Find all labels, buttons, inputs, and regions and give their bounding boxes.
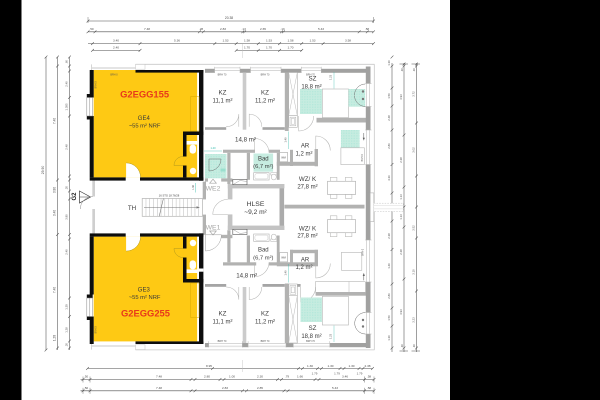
svg-text:1.13: 1.13 <box>399 214 403 220</box>
svg-text:2.83: 2.83 <box>220 27 226 31</box>
svg-text:.58: .58 <box>365 27 370 31</box>
svg-text:1.79: 1.79 <box>357 371 363 375</box>
svg-text:11,2 m²: 11,2 m² <box>255 320 275 326</box>
svg-text:5.36: 5.36 <box>174 39 180 43</box>
svg-text:.28: .28 <box>199 27 204 31</box>
svg-text:Bad: Bad <box>258 156 269 162</box>
svg-text:G2: G2 <box>72 192 78 201</box>
svg-text:.30: .30 <box>400 68 404 72</box>
svg-text:.13: .13 <box>242 27 247 31</box>
svg-text:3.10: 3.10 <box>412 269 416 275</box>
svg-text:3.40: 3.40 <box>113 39 119 43</box>
svg-text:1.30: 1.30 <box>387 60 391 66</box>
svg-text:1.13: 1.13 <box>399 194 403 200</box>
svg-text:GE4: GE4 <box>138 116 151 122</box>
svg-text:1.30: 1.30 <box>387 335 391 341</box>
svg-text:27,8 m²: 27,8 m² <box>297 185 317 191</box>
svg-text:TH: TH <box>128 205 136 212</box>
svg-text:.58: .58 <box>367 375 372 379</box>
svg-text:~55 m² NRF: ~55 m² NRF <box>129 123 161 129</box>
svg-text:2.83: 2.83 <box>222 386 228 390</box>
svg-text:3.72: 3.72 <box>412 91 416 97</box>
svg-text:3.80: 3.80 <box>65 214 69 220</box>
svg-text:11,1 m²: 11,1 m² <box>213 99 233 105</box>
svg-text:3.80: 3.80 <box>53 187 57 193</box>
svg-text:1.40: 1.40 <box>283 270 287 276</box>
svg-text:BRH 0: BRH 0 <box>110 73 118 76</box>
svg-text:1,2 m²: 1,2 m² <box>295 265 312 271</box>
svg-text:BRH 70: BRH 70 <box>261 73 270 76</box>
svg-text:1.30: 1.30 <box>327 364 333 368</box>
svg-text:2.38: 2.38 <box>387 233 391 239</box>
svg-text:KZ: KZ <box>261 311 269 318</box>
svg-text:2.40: 2.40 <box>113 46 119 50</box>
svg-text:11,1 m²: 11,1 m² <box>213 320 233 326</box>
svg-text:.20: .20 <box>65 186 69 190</box>
svg-text:WM: WM <box>281 255 286 259</box>
svg-text:.30: .30 <box>400 344 404 348</box>
svg-text:14,8 m²: 14,8 m² <box>235 137 256 144</box>
svg-text:GE3: GE3 <box>138 288 151 294</box>
svg-text:1.38: 1.38 <box>192 185 195 190</box>
svg-text:~9,2 m²: ~9,2 m² <box>244 209 267 216</box>
svg-text:WZ/ K: WZ/ K <box>299 225 317 232</box>
svg-text:2.48: 2.48 <box>387 115 391 121</box>
svg-text:AR: AR <box>301 144 310 150</box>
svg-text:SZ: SZ <box>309 76 317 83</box>
svg-text:2.48: 2.48 <box>65 144 69 150</box>
svg-text:1.58: 1.58 <box>287 39 293 43</box>
svg-text:1.50: 1.50 <box>387 315 391 321</box>
svg-text:G2EGG255: G2EGG255 <box>121 308 170 319</box>
svg-text:BRH 70: BRH 70 <box>306 340 315 343</box>
svg-text:1.53: 1.53 <box>222 39 228 43</box>
svg-text:WE1: WE1 <box>206 224 221 231</box>
svg-text:1.28: 1.28 <box>65 327 69 333</box>
svg-text:3.52: 3.52 <box>412 225 416 231</box>
svg-text:BRH 70: BRH 70 <box>218 340 227 343</box>
svg-text:BRH 70: BRH 70 <box>306 73 315 76</box>
svg-text:2.38: 2.38 <box>399 249 403 255</box>
svg-text:5.43: 5.43 <box>318 27 324 31</box>
svg-text:.50: .50 <box>84 386 89 390</box>
svg-text:7.48: 7.48 <box>156 386 162 390</box>
svg-text:3.93: 3.93 <box>399 94 403 100</box>
svg-text:HLSE: HLSE <box>247 201 265 208</box>
svg-text:KZ: KZ <box>219 311 227 318</box>
svg-text:1.50: 1.50 <box>387 93 391 99</box>
svg-text:7.48: 7.48 <box>156 375 162 379</box>
svg-text:2.38: 2.38 <box>364 364 370 368</box>
svg-text:~55 m² NRF: ~55 m² NRF <box>129 295 161 301</box>
svg-text:2.86: 2.86 <box>387 143 391 149</box>
svg-text:1.79: 1.79 <box>334 371 340 375</box>
svg-text:1.70: 1.70 <box>266 46 272 50</box>
svg-text:BRH 0: BRH 0 <box>94 326 97 334</box>
svg-text:BRH 0: BRH 0 <box>362 248 365 256</box>
svg-text:WM: WM <box>281 155 286 159</box>
svg-text:.30: .30 <box>412 344 416 348</box>
svg-text:SZ: SZ <box>309 325 317 332</box>
svg-text:Bad: Bad <box>258 248 269 254</box>
svg-text:3.40: 3.40 <box>53 210 57 216</box>
svg-text:1.30: 1.30 <box>348 364 354 368</box>
svg-text:1.40: 1.40 <box>210 146 216 150</box>
svg-text:2.65: 2.65 <box>260 27 266 31</box>
svg-text:1.40: 1.40 <box>283 137 287 143</box>
svg-text:2.80: 2.80 <box>204 375 210 379</box>
svg-text:1.66: 1.66 <box>297 375 303 379</box>
svg-text:2.86: 2.86 <box>387 293 391 299</box>
svg-text:4.36: 4.36 <box>387 175 391 181</box>
svg-text:.50: .50 <box>89 27 94 31</box>
svg-text:1.23: 1.23 <box>329 74 333 80</box>
svg-text:3.46: 3.46 <box>342 375 348 379</box>
svg-text:.20: .20 <box>65 343 69 347</box>
svg-text:(6,7 m²): (6,7 m²) <box>253 164 273 170</box>
svg-text:3.58: 3.58 <box>345 39 351 43</box>
svg-text:5.43: 5.43 <box>332 386 338 390</box>
svg-text:KZ: KZ <box>219 90 227 97</box>
svg-text:BRH 0: BRH 0 <box>94 81 97 89</box>
svg-text:.79: .79 <box>285 375 290 379</box>
svg-text:14,8 m²: 14,8 m² <box>236 273 257 280</box>
svg-text:BRH 0: BRH 0 <box>361 154 364 162</box>
svg-text:1.70: 1.70 <box>287 46 293 50</box>
svg-text:.30: .30 <box>412 68 416 72</box>
svg-text:.60: .60 <box>65 60 69 64</box>
svg-text:29.90: 29.90 <box>41 166 45 175</box>
svg-text:1.40: 1.40 <box>387 263 391 269</box>
svg-text:WZ/ K: WZ/ K <box>299 176 317 183</box>
svg-text:.58: .58 <box>367 386 372 390</box>
svg-text:1.70: 1.70 <box>244 46 250 50</box>
svg-text:AR: AR <box>301 258 310 264</box>
svg-text:7.40: 7.40 <box>53 287 57 293</box>
svg-text:11,2 m²: 11,2 m² <box>255 99 275 105</box>
svg-text:1.58: 1.58 <box>244 39 250 43</box>
svg-text:1.00: 1.00 <box>229 375 235 379</box>
svg-text:2.40: 2.40 <box>65 81 69 87</box>
svg-text:7.48: 7.48 <box>144 27 150 31</box>
svg-text:1.53: 1.53 <box>266 39 272 43</box>
svg-text:(6,7 m²): (6,7 m²) <box>253 256 273 262</box>
svg-text:G2EGG155: G2EGG155 <box>120 88 169 99</box>
svg-text:3.02: 3.02 <box>412 147 416 153</box>
svg-text:1.39: 1.39 <box>65 304 69 310</box>
svg-text:1.53: 1.53 <box>309 39 315 43</box>
svg-text:2.85: 2.85 <box>257 386 263 390</box>
svg-text:3.23: 3.23 <box>412 317 416 323</box>
svg-text:8.95: 8.95 <box>206 364 212 368</box>
svg-text:1.30: 1.30 <box>307 364 313 368</box>
svg-text:1.395: 1.395 <box>65 103 69 110</box>
svg-text:WE2: WE2 <box>206 186 221 193</box>
svg-text:2.30: 2.30 <box>257 375 263 379</box>
svg-text:27,8 m²: 27,8 m² <box>297 233 317 239</box>
svg-text:1,2 m²: 1,2 m² <box>295 152 312 158</box>
svg-text:1.23: 1.23 <box>329 333 333 339</box>
svg-text:1.79: 1.79 <box>312 371 318 375</box>
svg-text:BRH 70: BRH 70 <box>218 73 227 76</box>
svg-text:20.38: 20.38 <box>225 16 233 20</box>
svg-text:7.40: 7.40 <box>53 118 57 124</box>
svg-text:KZ: KZ <box>261 90 269 97</box>
svg-text:BRH 70: BRH 70 <box>261 340 270 343</box>
svg-text:18,8 m²: 18,8 m² <box>301 84 321 90</box>
svg-text:16 STG 18.76/28: 16 STG 18.76/28 <box>159 193 180 197</box>
svg-text:1.28: 1.28 <box>53 335 57 341</box>
svg-text:.50: .50 <box>84 375 89 379</box>
svg-text:2.38: 2.38 <box>399 157 403 163</box>
svg-text:.13: .13 <box>280 27 285 31</box>
svg-text:2.40: 2.40 <box>65 249 69 255</box>
svg-text:3.93: 3.93 <box>399 309 403 315</box>
